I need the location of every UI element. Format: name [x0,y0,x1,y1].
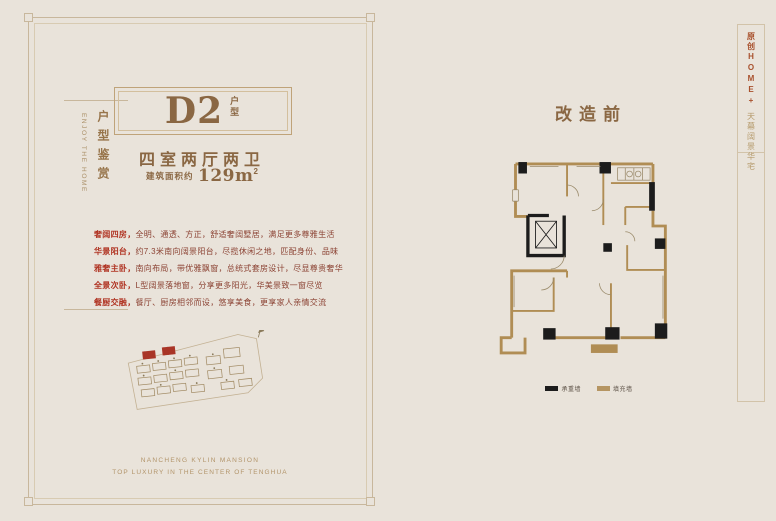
feature-list: 奢阔四房，全明、通透、方正，舒适奢阔墅居，满足更多尊雅生活 华景阳台，约7.3米… [94,226,354,311]
frame-corner-ornament [366,13,375,22]
right-strip: 原创HOME+ 天幕阔景华宅 [739,32,763,172]
feature-text: 约7.3米南向阔景阳台，尽揽休闲之地，匹配身份、品味 [136,247,339,256]
area-superscript: 2 [254,167,258,176]
legend-item-bearing-wall: 承重墙 [545,384,581,393]
sidebar-title-cn: 户型鉴赏 [95,110,112,186]
feature-label: 华景阳台， [94,247,136,256]
feature-label: 餐厨交融， [94,298,136,307]
unit-code: D2 [165,93,223,129]
feature-text: L型阔景落地窗，分享更多阳光，华美景致一窗尽览 [136,281,323,290]
feature-item: 餐厨交融，餐厅、厨房相邻而设，悠享美食，更享家人亲情交流 [94,294,354,311]
floor-plan-drawing [484,131,694,363]
feature-item: 全景次卧，L型阔景落地窗，分享更多阳光，华美景致一窗尽览 [94,277,354,294]
unit-title-box-inner: D2 户型 [118,91,288,131]
feature-label: 奢阔四房， [94,230,136,239]
legend-label: 填充墙 [613,384,633,393]
feature-text: 餐厅、厨房相邻而设，悠享美食，更享家人亲情交流 [136,298,327,307]
frame-corner-ornament [24,13,33,22]
frame-corner-ornament [366,497,375,506]
unit-suffix: 户型 [228,96,241,118]
north-arrow-icon [257,330,264,337]
unit-title-box: D2 户型 [114,87,292,135]
legend-item-infill-wall: 填充墙 [597,384,633,393]
project-name-en: NANCHENG KYLIN MANSION [60,457,340,464]
legend-swatch-tan [597,386,610,391]
sidebar-title-en: ENJOY THE HOME [80,113,87,193]
floor-plan-title: 改造前 [488,100,694,125]
legend-label: 承重墙 [561,384,581,393]
feature-text: 全明、通透、方正，舒适奢阔墅居，满足更多尊雅生活 [136,230,335,239]
site-plan-map [120,330,274,422]
area-prefix: 建筑面积约 [146,171,194,181]
floor-plan-legend: 承重墙 填充墙 [484,384,694,393]
frame-corner-ornament [24,497,33,506]
feature-item: 雅奢主卧，南向布局，带优雅飘窗，总统式套房设计，尽显尊贵奢华 [94,260,354,277]
feature-label: 全景次卧， [94,281,136,290]
legend-swatch-black [545,386,558,391]
area-value: 129m [198,166,253,186]
feature-item: 华景阳台，约7.3米南向阔景阳台，尽揽休闲之地，匹配身份、品味 [94,243,354,260]
strip-slogan-text: 天幕阔景华宅 [746,112,757,172]
feature-text: 南向布局，带优雅飘窗，总统式套房设计，尽显尊贵奢华 [136,264,344,273]
project-slogan-en: TOP LUXURY IN THE CENTER OF TENGHUA [60,469,340,476]
feature-label: 雅奢主卧， [94,264,136,273]
balcony-slab [591,344,618,353]
feature-item: 奢阔四房，全明、通透、方正，舒适奢阔墅居，满足更多尊雅生活 [94,226,354,243]
footer: NANCHENG KYLIN MANSION TOP LUXURY IN THE… [60,457,340,476]
area-line: 建筑面积约 129m2 [114,166,290,186]
strip-brand-text: 原创HOME+ [746,32,757,107]
